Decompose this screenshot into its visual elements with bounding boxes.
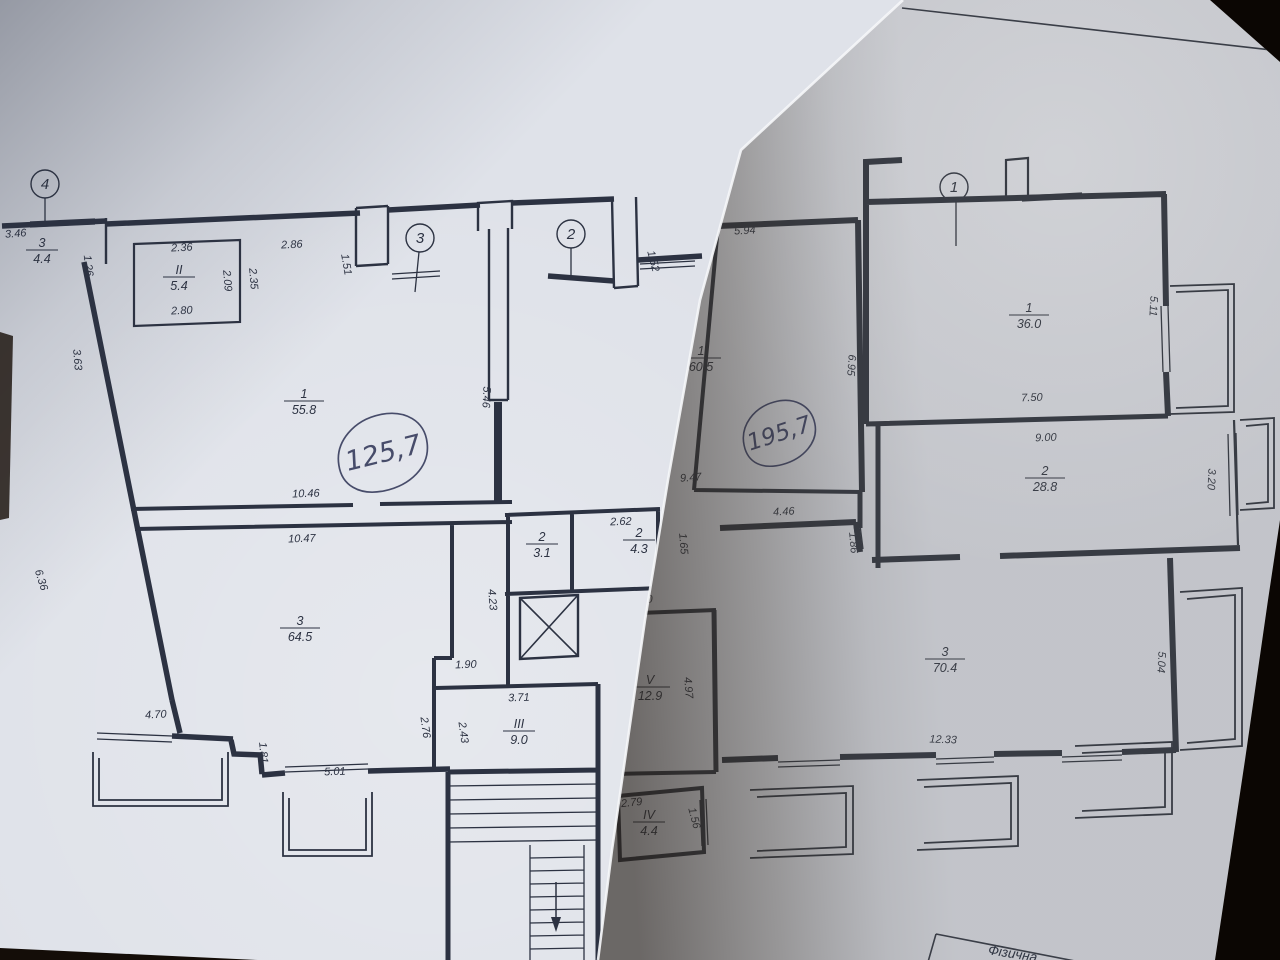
dimension-label: 2.36 [170, 241, 194, 254]
room-number-label: 2 [538, 530, 546, 544]
room-number-label: 1 [301, 387, 308, 401]
room-area-label: 4.3 [630, 542, 647, 556]
room-number-label: II [176, 263, 183, 277]
room-area-label: 4.4 [33, 252, 50, 266]
dimension-label: 1.81 [256, 742, 270, 764]
room-area-label: 5.4 [170, 279, 187, 293]
room-area-label: 55.8 [292, 403, 316, 417]
axis-marker-label: 4 [41, 176, 49, 193]
room-area-label: 3.1 [533, 546, 550, 560]
axis-marker-label: 2 [566, 226, 576, 243]
room-number-label: 2 [635, 526, 643, 540]
room-number-label: 3 [297, 614, 304, 628]
dimension-label: 2.09 [220, 269, 234, 292]
dimension-label: 10.47 [288, 532, 317, 545]
floorplan-photo: 5.946.959.474.461.861.652.604.972.791.56… [0, 0, 1280, 960]
dimension-label: 1.90 [455, 659, 478, 672]
dimension-label: 3.71 [508, 692, 530, 705]
dimension-label: 2.86 [280, 238, 304, 251]
room-number-label: 3 [39, 236, 46, 250]
dimension-label: 2.35 [246, 267, 260, 291]
dimension-label: 2.80 [170, 304, 194, 317]
dimension-label: 4.70 [145, 708, 168, 721]
room-number-label: III [514, 717, 525, 731]
room-area-label: 64.5 [288, 630, 312, 644]
dimension-label: 10.46 [292, 487, 321, 500]
room-area-label: 9.0 [510, 733, 527, 747]
floorplan-canvas: 5.946.959.474.461.861.652.604.972.791.56… [0, 0, 1280, 960]
dimension-label: 4.23 [485, 589, 499, 612]
dimension-label: 5.01 [324, 766, 346, 779]
dimension-label: 3.63 [70, 349, 84, 372]
dimension-label: 3.46 [5, 227, 28, 241]
dimension-label: 2.62 [609, 516, 632, 529]
axis-marker-label: 3 [416, 230, 425, 247]
dimension-label: 5.46 [479, 386, 492, 409]
